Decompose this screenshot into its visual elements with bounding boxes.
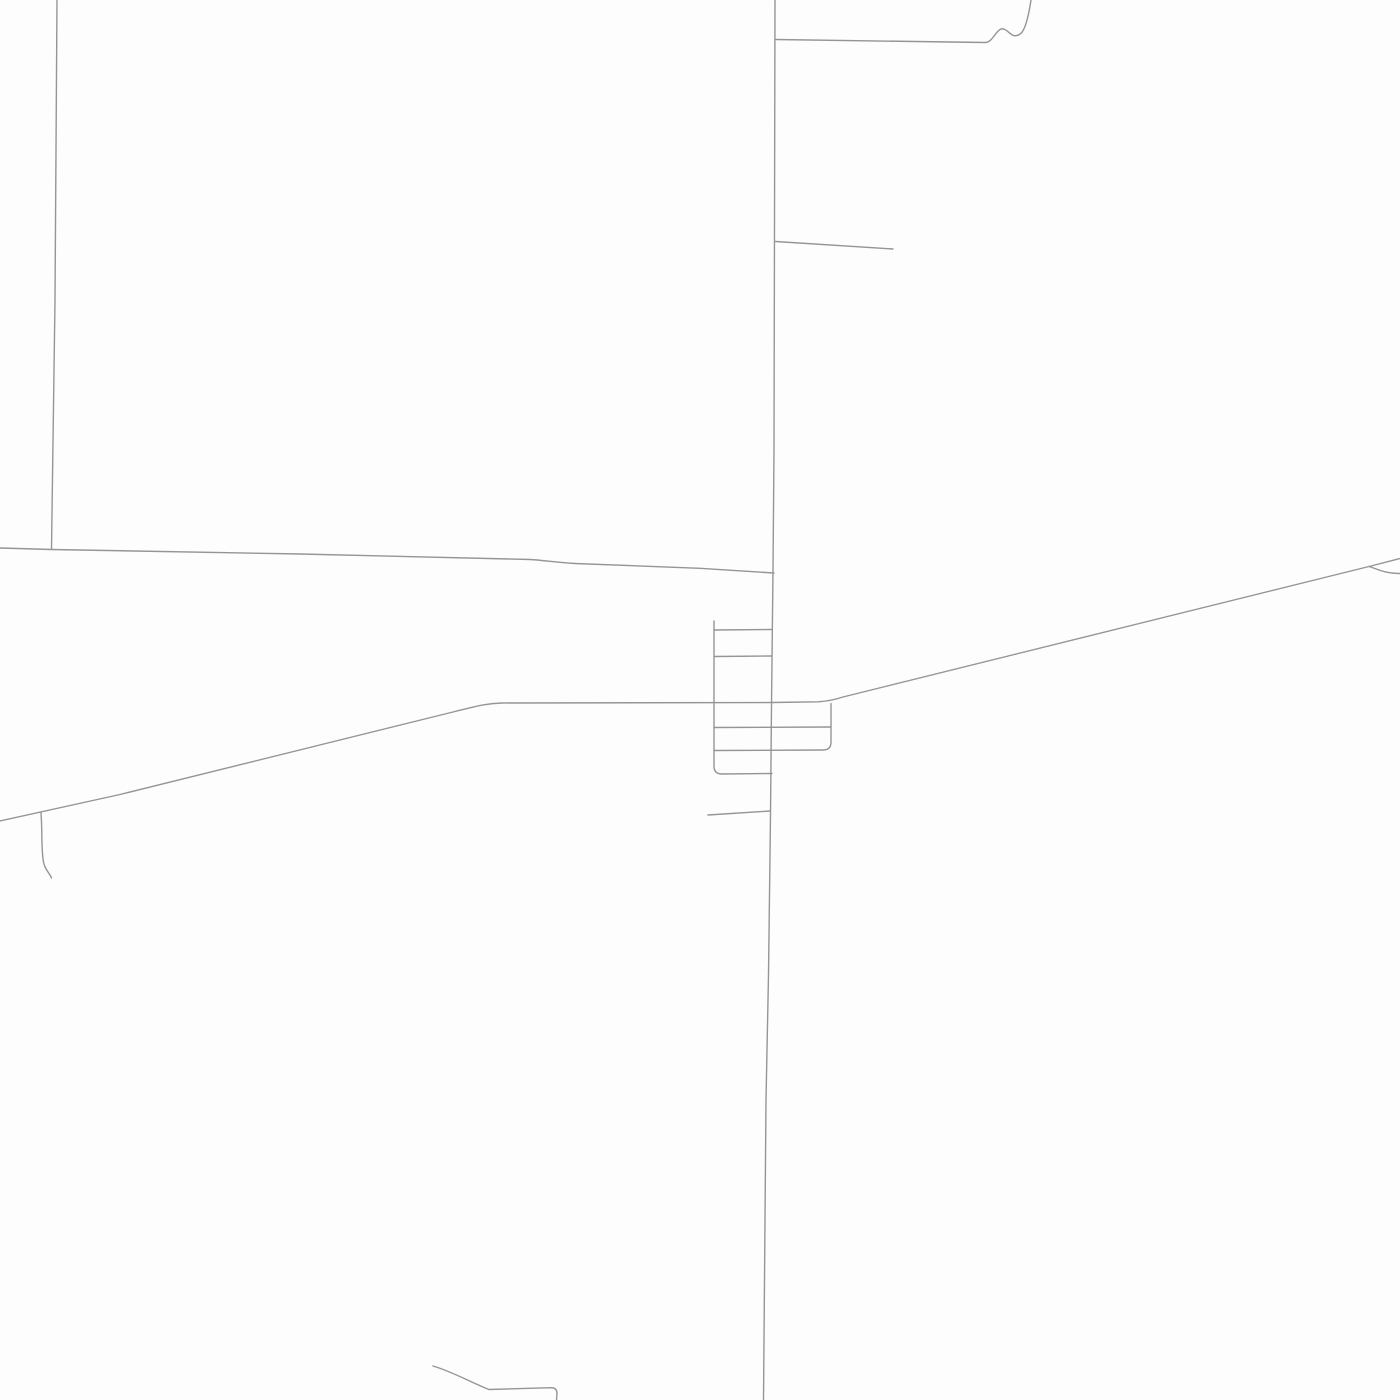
road-map-svg: [0, 0, 1400, 1400]
map-canvas[interactable]: [0, 0, 1400, 1400]
town-grid-street-3: [714, 727, 831, 728]
town-grid-street-1: [714, 630, 772, 631]
map-background: [0, 0, 1400, 1400]
town-grid-street-2: [714, 656, 772, 657]
